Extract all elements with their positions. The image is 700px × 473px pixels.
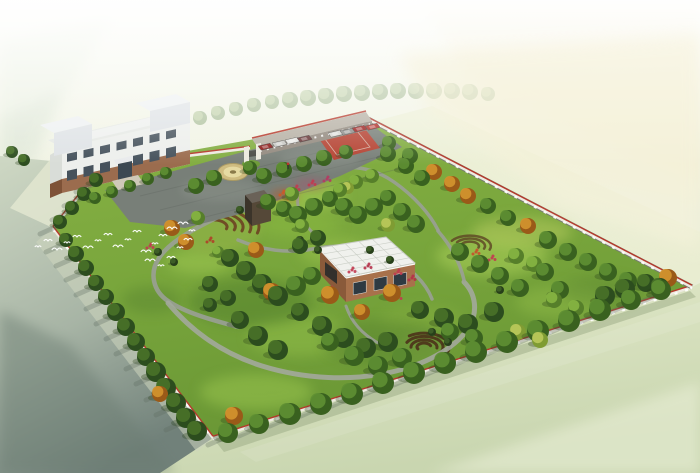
tree-canopy-highlight: [218, 423, 232, 437]
flower-cluster: [398, 269, 401, 272]
tree-canopy-highlight: [589, 299, 604, 314]
flower-cluster: [364, 267, 367, 270]
tree-canopy-highlight: [471, 255, 484, 268]
tree-canopy-highlight: [392, 348, 406, 362]
tree-canopy-highlight: [496, 286, 502, 292]
tree-canopy-highlight: [68, 246, 79, 257]
tree-canopy-highlight: [188, 178, 199, 189]
flower-cluster: [476, 249, 479, 252]
flower-cluster: [492, 255, 495, 258]
tree-canopy-highlight: [220, 290, 231, 301]
tree-canopy-highlight: [407, 215, 420, 228]
tree-canopy-highlight: [520, 218, 531, 229]
flower-cluster: [348, 271, 351, 274]
flower-cluster: [312, 180, 315, 183]
tree-canopy-highlight: [152, 386, 163, 397]
tree-canopy-highlight: [354, 304, 365, 315]
flower-cluster: [206, 241, 209, 244]
tree-canopy-highlight: [465, 341, 480, 356]
tree-canopy-highlight: [221, 249, 234, 262]
tree-canopy-highlight: [366, 246, 372, 252]
tree-canopy-highlight: [621, 290, 635, 304]
tree-canopy-highlight: [414, 170, 425, 181]
flower-cluster: [400, 272, 403, 275]
tree-canopy-highlight: [191, 211, 201, 221]
tree-canopy-highlight: [444, 338, 450, 344]
tree-canopy-highlight: [333, 183, 343, 193]
flower-cluster: [412, 275, 415, 278]
tree-canopy-highlight: [124, 180, 132, 188]
tree-canopy-highlight: [305, 198, 318, 211]
tree-canopy-highlight: [77, 187, 87, 197]
tree-canopy-highlight: [322, 191, 333, 202]
tree-canopy-highlight: [289, 206, 302, 219]
tree-canopy-highlight: [312, 316, 326, 330]
tree-canopy-highlight: [441, 323, 454, 336]
tree-canopy-highlight: [314, 246, 320, 252]
tree-canopy-highlight: [551, 281, 564, 294]
tree-canopy-highlight: [291, 303, 304, 316]
tree-canopy-highlight: [248, 326, 262, 340]
tree-canopy-highlight: [53, 215, 63, 225]
tree-canopy-highlight: [480, 198, 491, 209]
tree-canopy-highlight: [268, 340, 282, 354]
flower-cluster: [296, 185, 299, 188]
tree-canopy-highlight: [344, 346, 358, 360]
tree-canopy-highlight: [206, 170, 217, 181]
tree-canopy-highlight: [536, 263, 549, 276]
tree-canopy-highlight: [89, 173, 99, 183]
tree-canopy-highlight: [295, 219, 305, 229]
tree-canopy-highlight: [599, 263, 612, 276]
tree-canopy-highlight: [166, 393, 180, 407]
tree-canopy-highlight: [252, 274, 266, 288]
tree-canopy-highlight: [411, 301, 424, 314]
tree-canopy-highlight: [595, 286, 609, 300]
tree-canopy-highlight: [212, 246, 220, 254]
tree-canopy-highlight: [176, 408, 190, 422]
tree-canopy-highlight: [637, 274, 650, 287]
tree-canopy-highlight: [539, 231, 552, 244]
flower-cluster: [152, 246, 155, 249]
tree-canopy-highlight: [651, 280, 665, 294]
tree-canopy-highlight: [458, 314, 472, 328]
tree-canopy-highlight: [117, 318, 130, 331]
tree-canopy-highlight: [491, 267, 504, 280]
tree-canopy-highlight: [231, 311, 244, 324]
tree-canopy-highlight: [372, 372, 387, 387]
park-aerial-rendering: [0, 0, 700, 473]
tree-canopy-highlight: [249, 414, 263, 428]
tree-canopy-highlight: [279, 403, 294, 418]
tree-canopy-highlight: [434, 352, 449, 367]
tree-canopy-highlight: [365, 169, 375, 179]
flower-cluster: [323, 180, 326, 183]
tree-canopy-highlight: [187, 421, 201, 435]
flower-cluster: [354, 270, 357, 273]
tree-canopy-highlight: [225, 407, 238, 420]
tree-canopy-highlight: [508, 248, 519, 259]
tree-canopy-highlight: [378, 332, 392, 346]
tree-canopy-highlight: [532, 332, 543, 343]
tree-canopy-highlight: [386, 256, 392, 262]
tree-canopy-highlight: [203, 298, 213, 308]
tree-canopy-highlight: [321, 286, 334, 299]
tree-canopy-highlight: [236, 261, 250, 275]
tree-canopy-highlight: [310, 393, 325, 408]
tree-canopy-highlight: [365, 198, 378, 211]
tree-canopy-highlight: [164, 220, 175, 231]
flower-cluster: [478, 252, 481, 255]
tree-canopy-highlight: [579, 253, 592, 266]
tree-canopy-highlight: [268, 286, 282, 300]
flower-cluster: [146, 247, 149, 250]
tree-canopy-highlight: [434, 308, 448, 322]
tree-canopy-highlight: [335, 198, 348, 211]
tree-canopy-highlight: [341, 383, 356, 398]
tree-canopy-highlight: [137, 348, 150, 361]
tree-canopy-highlight: [292, 238, 303, 249]
flower-cluster: [283, 190, 286, 193]
flower-cluster: [212, 240, 215, 243]
flower-cluster: [210, 237, 213, 240]
tree-canopy-highlight: [107, 303, 120, 316]
tree-canopy-highlight: [559, 243, 572, 256]
tree-canopy-highlight: [511, 279, 524, 292]
tree-canopy-highlight: [393, 203, 406, 216]
tree-canopy-highlight: [98, 289, 109, 300]
tree-canopy-highlight: [65, 201, 75, 211]
tree-canopy-highlight: [310, 230, 321, 241]
tree-canopy-highlight: [428, 328, 434, 334]
tree-canopy-highlight: [127, 333, 140, 346]
tree-canopy-highlight: [154, 248, 160, 254]
tree-canopy-highlight: [349, 206, 362, 219]
tree-canopy-highlight: [106, 186, 114, 194]
tree-canopy-highlight: [368, 356, 382, 370]
tree-canopy-highlight: [89, 192, 97, 200]
tree-canopy-highlight: [160, 167, 168, 175]
tree-canopy-highlight: [403, 362, 418, 377]
tree-canopy-highlight: [546, 292, 557, 303]
flower-cluster: [352, 267, 355, 270]
tree-canopy-highlight: [558, 310, 573, 325]
tree-canopy-highlight: [484, 302, 498, 316]
flower-cluster: [400, 297, 403, 300]
tree-canopy-highlight: [88, 275, 99, 286]
tree-canopy-highlight: [321, 333, 334, 346]
tree-canopy-highlight: [444, 176, 455, 187]
tree-canopy-highlight: [146, 362, 160, 376]
tree-canopy-highlight: [568, 300, 579, 311]
tree-canopy-highlight: [451, 243, 464, 256]
tree-canopy-highlight: [465, 329, 478, 342]
tree-canopy-highlight: [276, 201, 287, 212]
flower-cluster: [408, 279, 411, 282]
tree-canopy-highlight: [202, 276, 213, 287]
tree-canopy-highlight: [383, 284, 396, 297]
flower-cluster: [494, 258, 497, 261]
tree-canopy-highlight: [526, 256, 537, 267]
rendering-frame: [0, 0, 700, 473]
circular-plaza-center: [230, 170, 236, 174]
tree-canopy-highlight: [500, 210, 511, 221]
garden-building-window: [353, 280, 366, 295]
tree-canopy-highlight: [285, 187, 295, 197]
flower-cluster: [327, 176, 330, 179]
flower-cluster: [368, 263, 371, 266]
tree-canopy-highlight: [496, 331, 511, 346]
flower-cluster: [414, 278, 417, 281]
tree-canopy-highlight: [248, 242, 259, 253]
tree-canopy-highlight: [78, 260, 89, 271]
tree-canopy-highlight: [381, 218, 391, 228]
flower-cluster: [472, 253, 475, 256]
tree-canopy-highlight: [303, 267, 316, 280]
tree-canopy-highlight: [236, 206, 242, 212]
flower-cluster: [308, 184, 311, 187]
flower-cluster: [314, 183, 317, 186]
flower-cluster: [279, 194, 282, 197]
flower-cluster: [370, 266, 373, 269]
flower-cluster: [329, 179, 332, 182]
tree-canopy-highlight: [380, 190, 391, 201]
tree-canopy-highlight: [286, 276, 300, 290]
tree-canopy-highlight: [256, 168, 267, 179]
tree-canopy-highlight: [460, 188, 471, 199]
tree-canopy-highlight: [260, 194, 271, 205]
tree-canopy-highlight: [142, 173, 150, 181]
flower-cluster: [394, 273, 397, 276]
tree-canopy-highlight: [59, 233, 69, 243]
